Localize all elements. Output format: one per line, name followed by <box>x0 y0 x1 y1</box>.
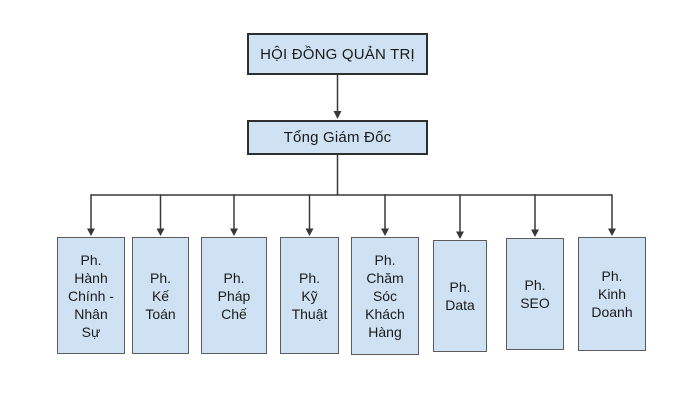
org-node-department: Ph. Chăm Sóc Khách Hàng <box>351 237 419 355</box>
org-node-label: HỘI ĐỒNG QUẢN TRỊ <box>260 46 415 63</box>
arrowhead-dept-3 <box>230 229 238 237</box>
org-node-label: Ph. Hành Chính - Nhân Sự <box>66 251 116 341</box>
org-node-department: Ph. Kế Toán <box>132 237 189 354</box>
org-node-label: Ph. SEO <box>515 276 555 312</box>
org-node-general-director: Tổng Giám Đốc <box>247 120 428 155</box>
org-node-department: Ph. SEO <box>506 238 564 350</box>
org-node-department: Ph. Kỹ Thuật <box>280 237 339 354</box>
arrowhead-dept-5 <box>381 229 389 237</box>
org-node-department: Ph. Data <box>433 240 487 352</box>
org-node-label: Ph. Kỹ Thuật <box>289 269 330 323</box>
org-node-label: Ph. Pháp Chế <box>210 269 258 323</box>
org-node-department: Ph. Hành Chính - Nhân Sự <box>57 237 125 354</box>
org-node-label: Ph. Kinh Doanh <box>587 267 637 321</box>
arrowhead-dept-6 <box>456 232 464 240</box>
org-node-department: Ph. Pháp Chế <box>201 237 267 354</box>
org-node-department: Ph. Kinh Doanh <box>578 237 646 351</box>
org-node-label: Ph. Chăm Sóc Khách Hàng <box>360 251 410 341</box>
arrowhead-director <box>334 111 342 119</box>
org-node-board-of-directors: HỘI ĐỒNG QUẢN TRỊ <box>247 33 428 75</box>
org-chart: HỘI ĐỒNG QUẢN TRỊ Tổng Giám Đốc Ph. Hành… <box>0 0 700 402</box>
arrowhead-dept-2 <box>157 229 165 237</box>
org-node-label: Ph. Kế Toán <box>141 269 180 323</box>
arrowhead-dept-4 <box>306 229 314 237</box>
arrowhead-dept-8 <box>608 229 616 237</box>
arrowhead-dept-1 <box>87 229 95 237</box>
org-node-label: Ph. Data <box>442 278 478 314</box>
org-node-label: Tổng Giám Đốc <box>284 129 392 146</box>
arrowhead-dept-7 <box>531 230 539 238</box>
